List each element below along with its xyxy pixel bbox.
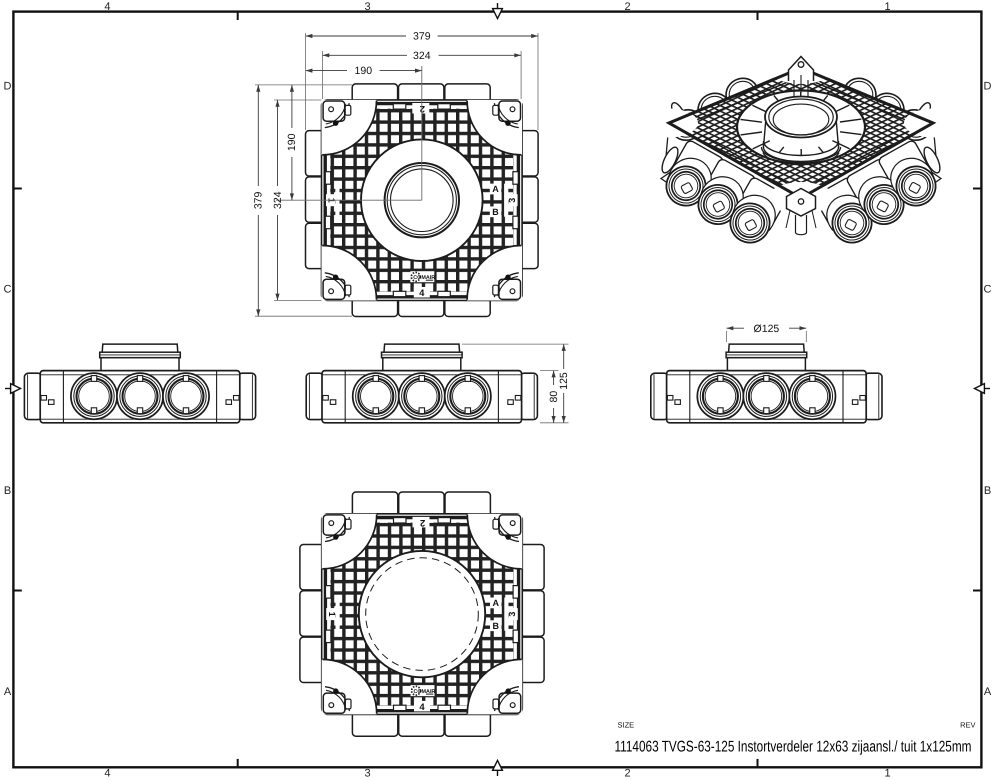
svg-text:4: 4	[104, 1, 110, 13]
svg-text:C: C	[4, 284, 12, 296]
svg-text:3: 3	[365, 1, 371, 13]
svg-text:C: C	[984, 284, 992, 296]
svg-text:2: 2	[420, 103, 425, 114]
svg-text:A: A	[492, 598, 499, 608]
svg-text:B: B	[492, 207, 499, 217]
svg-text:324: 324	[272, 191, 284, 209]
svg-text:125: 125	[558, 372, 570, 390]
svg-text:3: 3	[507, 198, 517, 203]
svg-text:2: 2	[624, 768, 630, 780]
svg-text:190: 190	[355, 65, 373, 77]
svg-text:Ø125: Ø125	[754, 323, 780, 335]
svg-text:324: 324	[413, 50, 431, 62]
svg-text:3: 3	[365, 768, 371, 780]
svg-text:B: B	[4, 485, 11, 497]
svg-text:D: D	[984, 81, 992, 93]
svg-text:B: B	[984, 485, 991, 497]
svg-text:379: 379	[253, 191, 265, 209]
svg-text:379: 379	[413, 31, 431, 43]
svg-text:1: 1	[327, 612, 337, 617]
svg-text:2: 2	[624, 1, 630, 13]
svg-text:4: 4	[104, 768, 110, 780]
svg-text:A: A	[492, 184, 499, 194]
svg-text:2: 2	[420, 517, 425, 528]
svg-text:1: 1	[884, 1, 890, 13]
svg-text:SIZE: SIZE	[618, 721, 635, 730]
svg-text:B: B	[492, 621, 499, 631]
svg-text:80: 80	[548, 391, 560, 403]
svg-text:1114063 TVGS-63-125 Instortver: 1114063 TVGS-63-125 Instortverdeler 12x6…	[615, 739, 972, 756]
svg-text:4: 4	[419, 702, 425, 713]
svg-text:A: A	[984, 686, 992, 698]
svg-text:4: 4	[419, 288, 425, 299]
svg-text:190: 190	[286, 133, 298, 151]
svg-text:D: D	[4, 81, 12, 93]
svg-text:1: 1	[884, 768, 890, 780]
svg-text:3: 3	[507, 612, 517, 617]
svg-text:A: A	[4, 686, 12, 698]
svg-text:REV: REV	[960, 721, 975, 730]
